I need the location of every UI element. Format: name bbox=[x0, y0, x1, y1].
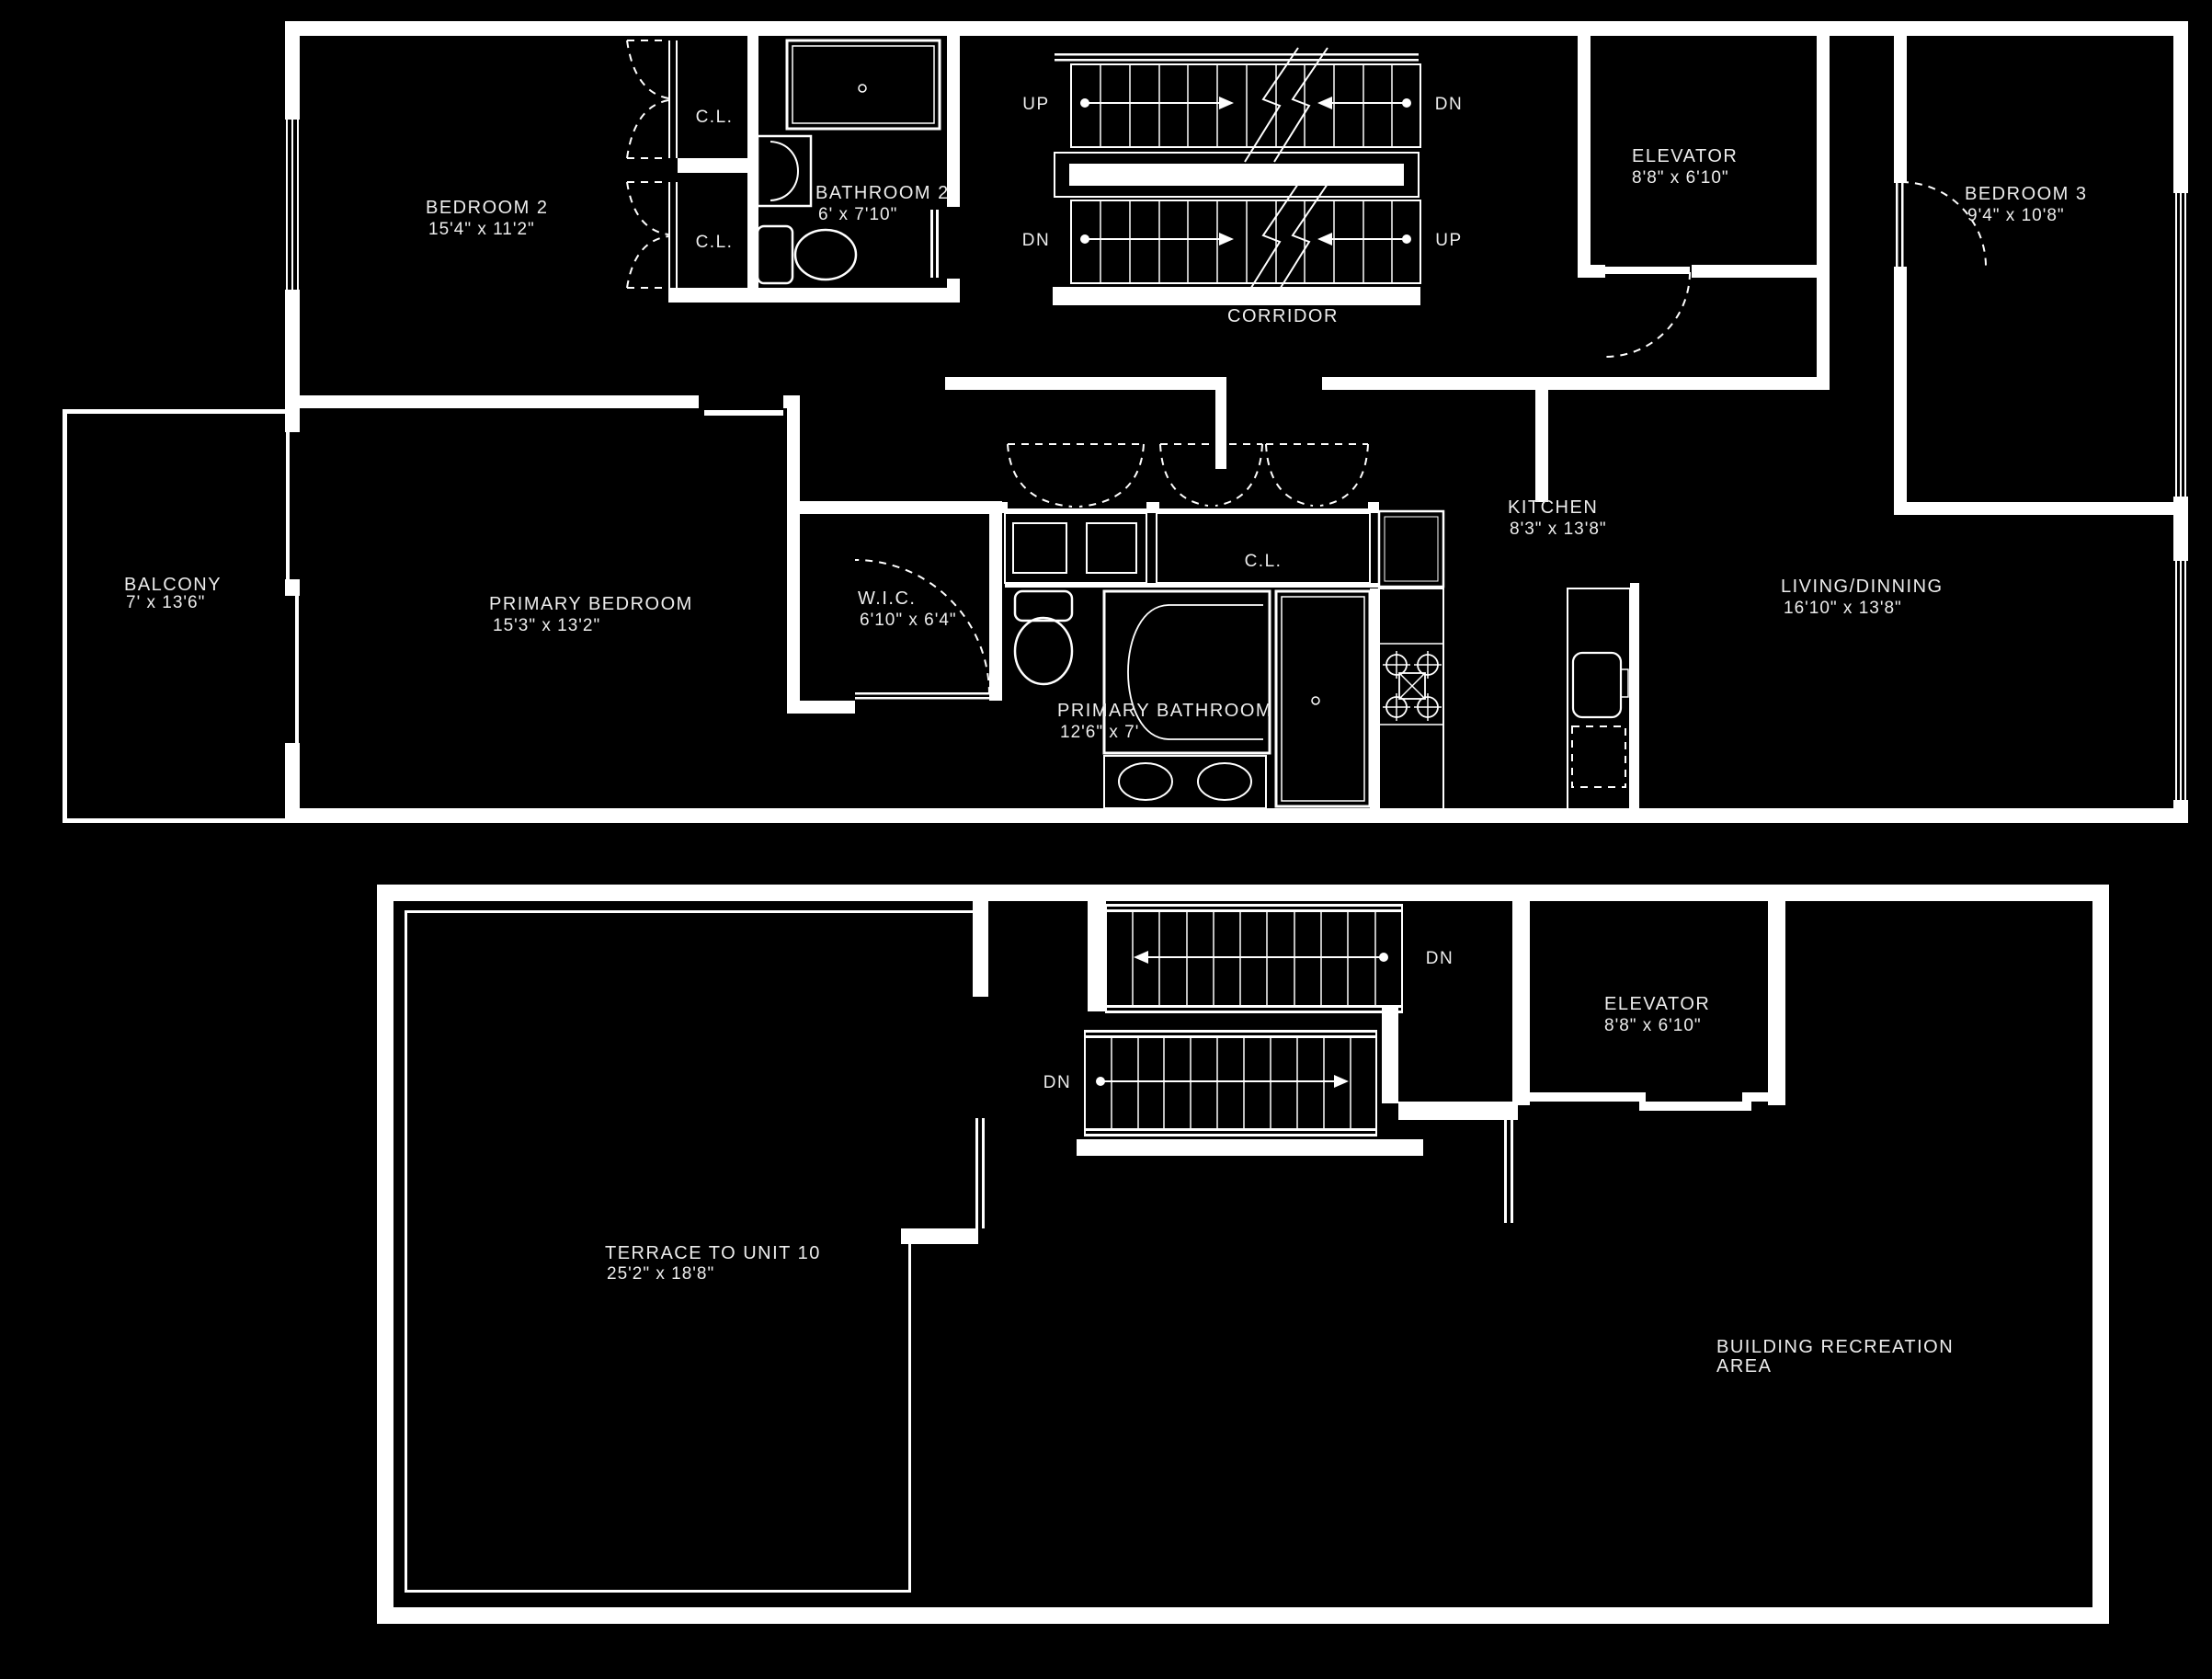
room-label-elevator-upper: ELEVATOR bbox=[1632, 146, 1738, 166]
dishwasher-symbol bbox=[1572, 726, 1625, 787]
room-label-elevator-lower: ELEVATOR bbox=[1604, 994, 1710, 1014]
stair-treads-flight2 bbox=[1100, 200, 1392, 283]
lobby-door-leaf bbox=[1504, 1120, 1507, 1223]
window-symbol-left bbox=[286, 120, 299, 290]
upper-floor-plan: BEDROOM 2 15'4" x 11'2" C.L. C.L. BATHRO… bbox=[63, 21, 2188, 823]
stair-label-dn-lower-left: DN bbox=[1043, 1073, 1071, 1092]
shower-symbol bbox=[1276, 591, 1370, 806]
room-dims-bathroom2: 6' x 7'10" bbox=[818, 205, 897, 224]
hall-closet-box bbox=[1157, 513, 1370, 583]
room-dims-primary-bedroom: 15'3" x 13'2" bbox=[493, 616, 600, 635]
stove-symbol bbox=[1383, 651, 1442, 721]
room-label-balcony: BALCONY bbox=[124, 575, 222, 595]
room-label-hall-closet: C.L. bbox=[1245, 552, 1283, 571]
room-label-closet-top: C.L. bbox=[696, 108, 734, 127]
stair-label-dn-left: DN bbox=[1022, 231, 1050, 250]
floor-plan-drawing: BEDROOM 2 15'4" x 11'2" C.L. C.L. BATHRO… bbox=[0, 0, 2212, 1679]
room-label-living-dining: LIVING/DINNING bbox=[1781, 577, 1944, 597]
room-dims-balcony: 7' x 13'6" bbox=[126, 593, 205, 612]
closet-bifold-doors bbox=[627, 40, 668, 288]
hall-closet-bifold-doors bbox=[1008, 444, 1368, 507]
fridge-symbol bbox=[1379, 511, 1443, 587]
window-symbol-living bbox=[2175, 561, 2186, 800]
shower-drain-icon bbox=[1312, 697, 1319, 704]
elevator-sliding-door bbox=[1639, 1102, 1751, 1111]
stair-label-dn-lower-right: DN bbox=[1426, 949, 1454, 968]
floor-plan-page: BEDROOM 2 15'4" x 11'2" C.L. C.L. BATHRO… bbox=[0, 0, 2212, 1679]
elevator-door-swing bbox=[1605, 272, 1690, 357]
room-label-wic: W.I.C. bbox=[858, 588, 916, 609]
primary-bathroom-fixtures bbox=[1015, 591, 1370, 808]
balcony-walls bbox=[63, 409, 285, 823]
room-label-corridor: CORRIDOR bbox=[1227, 306, 1339, 326]
room-dims-bedroom2: 15'4" x 11'2" bbox=[428, 220, 535, 239]
bathroom2-fixtures bbox=[758, 40, 940, 283]
room-label-closet-bottom: C.L. bbox=[696, 233, 734, 252]
room-label-bedroom3: BEDROOM 3 bbox=[1965, 184, 2088, 204]
stair-label-up-right: UP bbox=[1435, 231, 1462, 250]
hall-vanity-and-closet bbox=[1005, 513, 1370, 583]
double-vanity-symbol bbox=[1104, 756, 1266, 808]
room-dims-wic: 6'10" x 6'4" bbox=[860, 611, 957, 630]
sink-symbol bbox=[758, 136, 811, 206]
room-label-bathroom2: BATHROOM 2 bbox=[815, 183, 950, 203]
room-label-kitchen: KITCHEN bbox=[1508, 497, 1598, 518]
stair-label-up-left: UP bbox=[1022, 95, 1049, 114]
terrace-door-leaf bbox=[975, 1118, 978, 1228]
room-dims-elevator-lower: 8'8" x 6'10" bbox=[1604, 1016, 1702, 1035]
toilet-symbol bbox=[758, 226, 792, 283]
room-dims-primary-bathroom: 12'6" x 7' bbox=[1060, 723, 1139, 742]
window-symbol-bedroom3 bbox=[2175, 193, 2186, 497]
room-dims-bedroom3: 9'4" x 10'8" bbox=[1967, 206, 2065, 225]
room-dims-kitchen: 8'3" x 13'8" bbox=[1510, 520, 1607, 539]
kitchen-sink-symbol bbox=[1573, 653, 1621, 717]
room-dims-living-dining: 16'10" x 13'8" bbox=[1784, 599, 1902, 618]
stairs-upper-symbol bbox=[1053, 48, 1420, 305]
room-dims-elevator-upper: 8'8" x 6'10" bbox=[1632, 168, 1729, 188]
kitchen-fixtures bbox=[1379, 511, 1630, 809]
room-label-recreation-line2: AREA bbox=[1716, 1356, 1772, 1376]
shower-drain-icon bbox=[859, 85, 866, 92]
toilet-symbol bbox=[1015, 591, 1072, 621]
lower-interior-walls bbox=[901, 885, 1785, 1244]
stair-arrow-icon bbox=[1317, 233, 1332, 246]
room-label-terrace: TERRACE TO UNIT 10 bbox=[605, 1243, 821, 1263]
stair-treads-flight1 bbox=[1100, 64, 1392, 147]
stair-label-dn-right: DN bbox=[1435, 95, 1463, 114]
room-label-primary-bathroom: PRIMARY BATHROOM bbox=[1057, 701, 1272, 721]
stair-arrow-icon bbox=[1334, 1075, 1349, 1088]
stair-arrow-icon bbox=[1219, 233, 1234, 246]
stair-arrow-icon bbox=[1134, 951, 1148, 964]
stair-arrow-icon bbox=[1317, 97, 1332, 109]
stair-arrow-icon bbox=[1219, 97, 1234, 109]
stairs-lower-symbol bbox=[1077, 904, 1423, 1156]
room-dims-terrace: 25'2" x 18'8" bbox=[607, 1264, 714, 1284]
room-label-bedroom2: BEDROOM 2 bbox=[426, 198, 549, 218]
room-label-primary-bedroom: PRIMARY BEDROOM bbox=[489, 594, 693, 614]
lower-floor-plan: DN DN ELEVATOR 8'8" x 6'10" TERRACE TO U… bbox=[377, 885, 2109, 1624]
room-label-recreation-line1: BUILDING RECREATION bbox=[1716, 1337, 1954, 1357]
